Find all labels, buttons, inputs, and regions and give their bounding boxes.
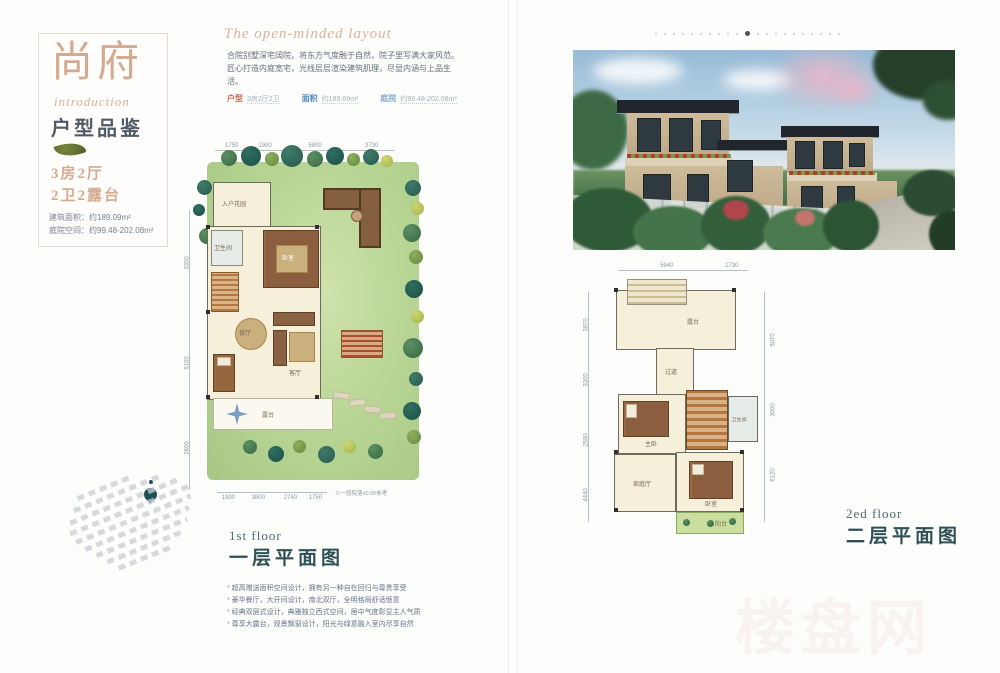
- living-rug: [289, 332, 315, 362]
- cloud: [593, 58, 683, 84]
- window: [823, 141, 843, 169]
- bush: [823, 200, 879, 250]
- intro-paragraph: 合院别墅深宅阔院，将东方气度融于自然，院子里写满大家风范。 匠心打造内庭宽宅，光…: [227, 50, 465, 88]
- wall-post: [740, 450, 744, 454]
- trellis: [341, 330, 383, 358]
- stairs: [211, 272, 239, 312]
- dimension-value: 3800: [240, 495, 277, 501]
- brand-title: 尚府: [51, 40, 143, 86]
- wall-post: [614, 288, 618, 292]
- room-label: 卫生间: [214, 243, 232, 252]
- feature-item: 尊享大露台，观景飘窗设计，阳光与绿意融入室内尽享自然: [227, 619, 485, 631]
- dimension-line-bottom: 1900 3800 2740 1750: [217, 492, 327, 501]
- window: [669, 118, 693, 152]
- blossom-tree: [823, 70, 883, 110]
- brand-card: 尚府 introduction 户型品鉴 3房2厅 2卫2露台 建筑面积：约18…: [38, 33, 168, 247]
- stepping-stone: [379, 411, 396, 419]
- tree-icon: [197, 180, 212, 195]
- bedroom: 卧室: [676, 452, 744, 512]
- room-label: 过道: [665, 367, 677, 376]
- dimension-value: 5940: [618, 263, 716, 271]
- plant-icon: [707, 520, 714, 527]
- bed: [623, 401, 669, 437]
- feature-list: 超高赠送面积空间设计，拥有另一种自在回归与尊贵享受 豪华餐厅，大开间设计，南北双…: [227, 583, 485, 631]
- tag-label: 面积: [302, 94, 318, 103]
- bed: [213, 354, 235, 392]
- room-label: 家庭厅: [633, 479, 651, 488]
- pergola: [627, 279, 687, 305]
- wall-post: [614, 508, 618, 512]
- bed: [689, 461, 733, 499]
- room-label: 卫生间: [731, 416, 746, 424]
- window: [727, 160, 753, 192]
- wall-post: [740, 508, 744, 512]
- dimension-value: 3000: [771, 403, 777, 416]
- feature-item: 经典双层式设计，典雅独立西式空间，居中气度彰显主人气质: [227, 607, 485, 619]
- site-plan: [52, 478, 207, 643]
- family-room: 家庭厅: [614, 454, 676, 512]
- villa-roof: [717, 140, 789, 151]
- dimension-line-left: 3300 5100 2600: [189, 210, 190, 490]
- pillow: [692, 464, 704, 475]
- room-label: 主卧: [645, 439, 657, 448]
- room-label: 露台: [687, 317, 699, 326]
- page-fold-line: [517, 0, 518, 673]
- tree-icon: [363, 149, 379, 165]
- tree-icon: [411, 310, 424, 323]
- dimension-value: 2600: [185, 441, 191, 454]
- tagline-ornament: [655, 31, 960, 36]
- wall-post: [732, 288, 736, 292]
- tag-area: 面积约189.09m²: [302, 88, 359, 106]
- tree-icon: [268, 446, 284, 462]
- room-label: 阳台: [715, 519, 727, 528]
- page-fold-line: [508, 0, 509, 673]
- balcony-flowers: [627, 154, 731, 158]
- dimension-line-left: 3870 3300 2580 4440: [588, 292, 589, 522]
- flower-bush: [723, 200, 749, 220]
- pillow: [626, 404, 637, 418]
- unit-spec-baths: 2卫2露台: [51, 184, 121, 205]
- dimension-value: 1900: [217, 495, 240, 501]
- dimension-value: 3300: [584, 373, 590, 386]
- tree-icon: [307, 151, 323, 167]
- room-label: 入户花园: [222, 199, 246, 208]
- second-floor-plan: 5940 1730 3870 3300 2580 4440 5070 3000 …: [578, 262, 773, 537]
- tree-icon: [368, 444, 383, 459]
- dimension-line-right: 5070 3000 6120: [764, 292, 765, 522]
- tree-icon: [411, 202, 424, 215]
- tag-label: 户型: [227, 94, 243, 103]
- unit-spec-rooms: 3房2厅: [51, 162, 104, 183]
- window: [849, 143, 865, 167]
- compass-icon: [226, 403, 248, 425]
- intro-line2: 匠心打造内庭宽宅，光线层层渲染建筑肌理，尽显内涵与上品生活。: [227, 64, 451, 86]
- tag-value: 约189.09m²: [322, 96, 359, 104]
- room-label: 卧室: [705, 499, 717, 508]
- tree-icon: [405, 280, 423, 298]
- first-floor-plan: 1750 1900 5800 3730 3300 5100 2600: [183, 140, 431, 505]
- balcony-flowers: [789, 171, 875, 175]
- tag-unit: 户型3房2厅2卫: [227, 88, 280, 106]
- tag-courtyard: 庭院约99.48-202.08m²: [380, 88, 456, 106]
- flower-bush: [795, 210, 815, 226]
- feature-item: 豪华餐厅，大开间设计，南北双厅，全明格局舒适惬意: [227, 595, 485, 607]
- wall-post: [315, 395, 319, 399]
- tree-icon: [405, 180, 421, 196]
- plant-icon: [729, 518, 736, 525]
- floor2-label-cn: 二层平面图: [846, 521, 961, 548]
- tree-icon: [403, 402, 421, 420]
- dimension-value: 3300: [185, 256, 191, 269]
- floor1-label-en: 1st floor: [229, 528, 282, 544]
- tree-icon: [326, 147, 344, 165]
- dimension-value: 5070: [771, 333, 777, 346]
- corridor: 过道: [656, 348, 694, 396]
- sofa: [273, 312, 315, 326]
- entry-garden-room: 入户花园: [213, 182, 271, 228]
- tagline-center-dot: [745, 31, 750, 36]
- bathroom: 卫生间: [728, 396, 758, 442]
- bathroom: 卫生间: [211, 230, 243, 266]
- dimension-value: 6120: [771, 468, 777, 481]
- leaf-icon: [53, 138, 86, 162]
- wall-post: [206, 225, 210, 229]
- villa-roof: [617, 100, 739, 114]
- dimension-line-top: 5940 1730: [618, 270, 748, 271]
- plan-note: ※一层院落±0.00参考: [335, 489, 387, 497]
- tree-icon: [381, 155, 393, 167]
- balcony: 阳台: [676, 512, 744, 534]
- tree-icon: [281, 145, 303, 167]
- brand-subtitle: 户型品鉴: [51, 112, 143, 141]
- bedroom-wood-floor: 卧室: [263, 230, 319, 288]
- watermark: 楼盘网: [735, 580, 933, 667]
- tree-icon: [347, 153, 360, 166]
- feature-item: 超高赠送面积空间设计，拥有另一种自在回归与尊贵享受: [227, 583, 485, 595]
- tree-icon: [403, 224, 421, 242]
- wall-post: [315, 225, 319, 229]
- tree-icon: [409, 372, 423, 386]
- bush: [903, 170, 955, 216]
- intro-script-title: The open-minded layout: [224, 26, 392, 43]
- room-label: 卧室: [282, 253, 294, 262]
- tag-value: 3房2厅2卫: [247, 96, 280, 104]
- tree-icon: [193, 204, 205, 216]
- dimension-value: 5100: [185, 356, 191, 369]
- tree-icon: [265, 152, 279, 166]
- tag-value: 约99.48-202.08m²: [400, 96, 456, 104]
- tree-icon: [318, 446, 335, 463]
- intro-line1: 合院别墅深宅阔院，将东方气度融于自然，院子里写满大家风范。: [227, 51, 459, 60]
- pillow: [217, 357, 231, 366]
- tree-icon: [403, 338, 423, 358]
- tree-icon: [221, 150, 237, 166]
- wall-post: [614, 450, 618, 454]
- dimension-value: 2580: [584, 433, 590, 446]
- floor1-label-cn: 一层平面图: [229, 543, 344, 570]
- tree-icon: [241, 146, 261, 166]
- terrace: 露台: [213, 398, 333, 430]
- tree-icon: [409, 250, 423, 264]
- villa-rendering-photo: [573, 50, 955, 250]
- dimension-value: 3870: [584, 318, 590, 331]
- dimension-value: 1750: [304, 495, 327, 501]
- room-label: 餐厅: [239, 328, 251, 337]
- tree-icon: [407, 430, 421, 444]
- wall-post: [206, 310, 210, 314]
- master-bedroom: 主卧: [618, 394, 686, 454]
- dimension-value: 1730: [716, 263, 749, 271]
- tag-label: 庭院: [380, 94, 396, 103]
- dimension-value: 4440: [584, 488, 590, 501]
- stairs: [686, 390, 728, 450]
- building-area-text: 建筑面积：约189.09m²: [49, 212, 131, 223]
- tree-icon: [243, 440, 257, 454]
- room-label: 客厅: [289, 368, 301, 377]
- wall-post: [206, 395, 210, 399]
- window: [795, 141, 815, 169]
- pavilion-table: [351, 210, 363, 222]
- floor2-label-en: 2ed floor: [846, 506, 902, 522]
- intro-tags: 户型3房2厅2卫 面积约189.09m² 庭院约99.48-202.08m²: [227, 88, 457, 106]
- brand-script-word: introduction: [54, 94, 130, 110]
- tree-icon: [293, 440, 306, 453]
- courtyard-area-text: 庭院空间：约99.48-202.08m²: [49, 225, 153, 236]
- room-label: 露台: [262, 410, 274, 419]
- window: [637, 118, 661, 152]
- tree-icon: [343, 440, 356, 453]
- dimension-value: 2740: [277, 495, 305, 501]
- sofa: [273, 330, 287, 366]
- brochure-page: 尚府 introduction 户型品鉴 3房2厅 2卫2露台 建筑面积：约18…: [0, 0, 1000, 673]
- plant-icon: [683, 519, 690, 526]
- roof-terrace: 露台: [616, 290, 736, 350]
